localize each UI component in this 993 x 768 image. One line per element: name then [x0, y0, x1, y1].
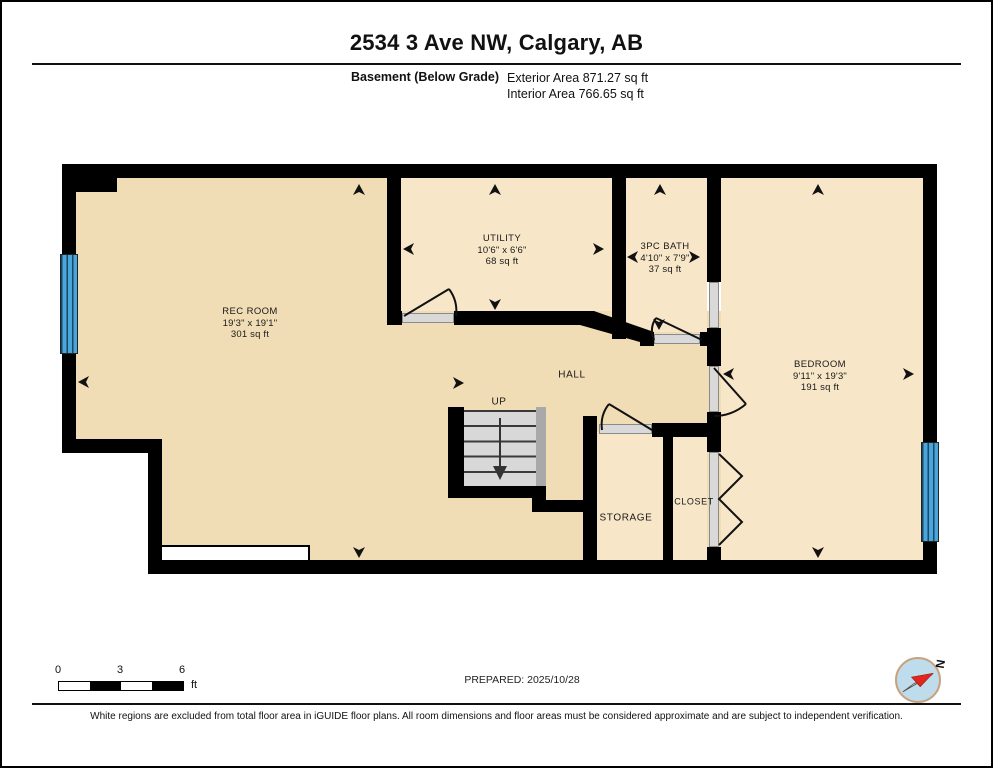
wall-bedroom-left-c [707, 547, 721, 574]
wall-stair-left [448, 407, 464, 494]
wall-bath-bottom-a [640, 332, 654, 346]
wall-top [62, 164, 937, 178]
wall-bottom [148, 560, 937, 574]
wall-jog-horizontal [62, 439, 162, 453]
threshold-storage-door [599, 424, 652, 434]
disclaimer-text: White regions are excluded from total fl… [2, 711, 991, 722]
room-label-hall: HALL [558, 369, 585, 381]
wall-opening-bath-bedroom [709, 282, 719, 328]
scale-unit: ft [191, 679, 197, 691]
room-area: 301 sq ft [222, 329, 277, 341]
room-dimensions: 9'11" x 19'3" [793, 370, 847, 382]
threshold-bedroom-door [709, 366, 719, 412]
wall-utility-bottom-a [387, 311, 402, 325]
interior-area: Interior Area 766.65 sq ft [507, 86, 648, 102]
wall-right-lower [923, 542, 937, 574]
room-area: 68 sq ft [477, 256, 526, 268]
exterior-area: Exterior Area 871.27 sq ft [507, 70, 648, 86]
room-label-bedroom: BEDROOM 9'11" x 19'3" 191 sq ft [793, 359, 847, 394]
scale-bar: 0 3 6 ft [58, 664, 268, 698]
room-area: 191 sq ft [793, 382, 847, 394]
page-title: 2534 3 Ave NW, Calgary, AB [2, 30, 991, 56]
prepared-date: PREPARED: 2025/10/28 [464, 674, 579, 686]
wall-utility-bottom-b [454, 311, 587, 325]
threshold-bath-door [654, 334, 700, 344]
area-summary: Exterior Area 871.27 sq ft Interior Area… [507, 70, 648, 102]
wall-storage-closet [663, 430, 673, 567]
scale-bar-segments [58, 681, 184, 691]
room-dimensions: 10'6" x 6'6" [477, 244, 526, 256]
scale-tick-3: 3 [117, 664, 123, 676]
room-dimensions: 19'3" x 19'1" [222, 317, 277, 329]
wall-bath-bedroom-upper [707, 164, 721, 282]
window-rec-room [60, 254, 78, 354]
wall-bedroom-left-a [707, 328, 721, 366]
scale-tick-0: 0 [55, 664, 61, 676]
wall-right-upper [923, 164, 937, 442]
wall-jog-vertical [148, 439, 162, 574]
room-storage [597, 432, 663, 560]
stairs-up-label: UP [491, 396, 506, 408]
room-name: REC ROOM [222, 306, 277, 318]
footer-divider [32, 703, 961, 705]
window-bedroom [921, 442, 939, 542]
header-divider [32, 63, 961, 65]
scale-tick-6: 6 [179, 664, 185, 676]
room-name: UTILITY [477, 233, 526, 245]
wall-storage-left [583, 416, 597, 574]
room-label-closet: CLOSET [674, 496, 714, 508]
room-label-utility: UTILITY 10'6" x 6'6" 68 sq ft [477, 233, 526, 268]
threshold-utility-door [402, 313, 454, 323]
wall-hall-storage-link [532, 500, 594, 512]
room-name: BEDROOM [793, 359, 847, 371]
room-area: 37 sq ft [640, 264, 689, 276]
wall-left-upper [62, 164, 76, 254]
stairs-treads [464, 410, 536, 486]
room-name: 3PC BATH [640, 241, 689, 253]
stairs-rail [536, 407, 546, 486]
room-label-bath: 3PC BATH 4'10" x 7'9" 37 sq ft [640, 241, 689, 276]
wall-rec-utility [387, 164, 401, 325]
floorplan-page: 2534 3 Ave NW, Calgary, AB Basement (Bel… [0, 0, 993, 768]
wall-utility-bath [612, 164, 626, 339]
outside-region [2, 453, 150, 577]
room-label-rec-room: REC ROOM 19'3" x 19'1" 301 sq ft [222, 306, 277, 341]
compass-icon: N [893, 653, 947, 707]
room-dimensions: 4'10" x 7'9" [640, 252, 689, 264]
floor-label: Basement (Below Grade) [2, 70, 499, 84]
room-label-storage: STORAGE [600, 512, 653, 524]
